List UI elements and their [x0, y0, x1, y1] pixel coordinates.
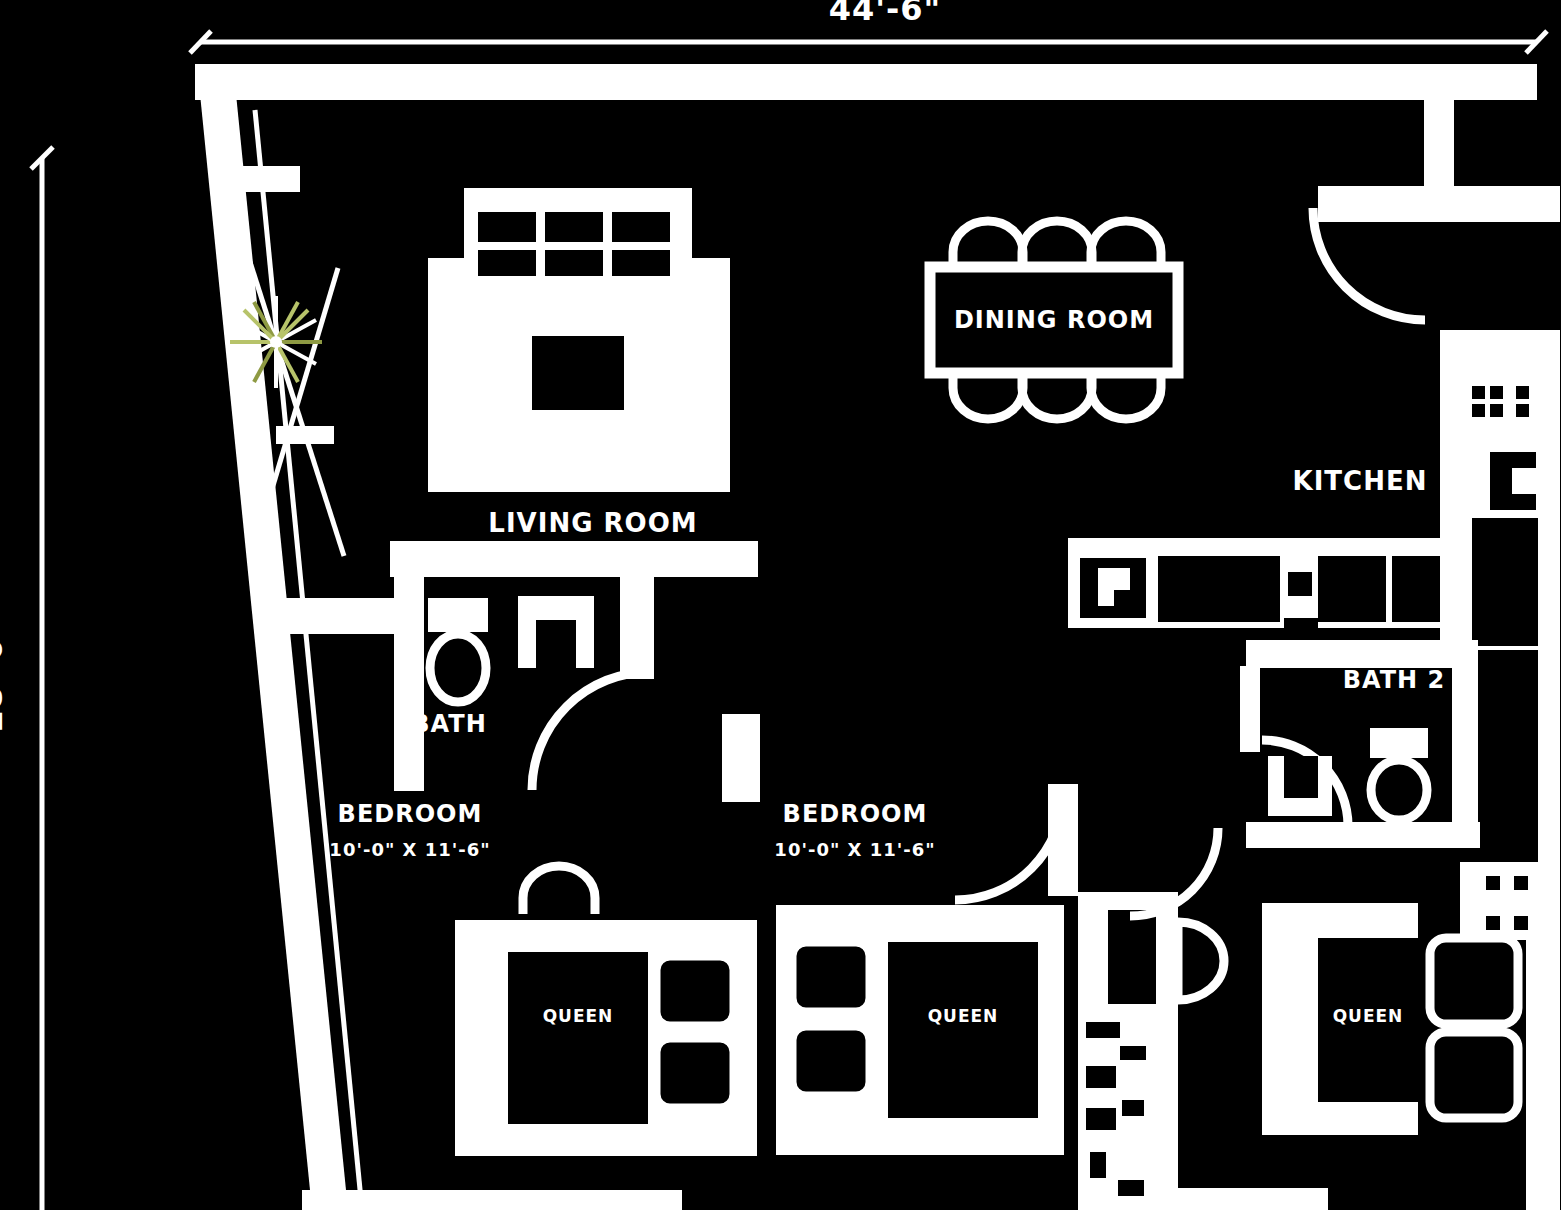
- bed-3: QUEEN: [1262, 903, 1518, 1135]
- bedroom-2: BEDROOM 10'-0" X 11'-6" QUEEN: [774, 800, 1064, 1155]
- left-dimension-line: 28'-0": [0, 147, 53, 1210]
- bedroom-3: QUEEN: [1262, 903, 1518, 1135]
- floor-plan-drawing: 44'-6" 28'-0": [0, 0, 1561, 1210]
- bath2-label: BATH 2: [1343, 666, 1446, 694]
- bath1-label: BATH: [411, 710, 486, 738]
- top-dimension-line: 44'-6": [190, 0, 1547, 53]
- living-room-label: LIVING ROOM: [488, 508, 697, 538]
- pillow-icon: [792, 1026, 870, 1096]
- bed3-label: QUEEN: [1333, 1006, 1404, 1026]
- closet-shelf: [1108, 910, 1156, 1004]
- tall-cabinet: [1472, 518, 1538, 646]
- bedroom1-size: 10'-0" X 11'-6": [329, 839, 490, 860]
- bath1-sink-icon: [518, 596, 594, 668]
- bath1-door-arc: [532, 672, 650, 790]
- pillow-icon: [656, 956, 734, 1026]
- sink-drain-icon: [1288, 572, 1312, 596]
- living-room: LIVING ROOM: [428, 188, 730, 538]
- closet-door-half-circle: [1178, 922, 1224, 1000]
- walk-in-closet: [1078, 828, 1224, 1210]
- bedroom1-label: BEDROOM: [338, 800, 483, 828]
- media-window-unit: [464, 188, 692, 282]
- bath-1: BATH: [270, 541, 760, 802]
- chair-icon: [523, 866, 595, 914]
- pillow-icon: [1430, 1032, 1518, 1118]
- bed-1: QUEEN: [455, 920, 757, 1156]
- floor-plan-canvas: 44'-6" 28'-0": [0, 0, 1561, 1210]
- kitchen-door-leaf: [1424, 100, 1454, 222]
- hall-door: [955, 784, 1078, 900]
- top-dimension-text: 44'-6": [829, 0, 942, 28]
- left-dimension-text: 28'-0": [0, 620, 10, 733]
- bath-2: BATH 2: [1240, 640, 1480, 848]
- dining-room-label: DINING ROOM: [954, 306, 1154, 334]
- kitchen-label: KITCHEN: [1293, 466, 1428, 496]
- base-cabinet: [1318, 556, 1386, 622]
- coffee-table: [532, 336, 624, 410]
- base-cabinet: [1158, 556, 1280, 622]
- oven-door-icon: [1512, 468, 1536, 494]
- bed1-label: QUEEN: [543, 1006, 614, 1026]
- bedroom2-size: 10'-0" X 11'-6": [774, 839, 935, 860]
- pillow-icon: [792, 942, 870, 1012]
- bed-blanket: [888, 942, 1038, 1118]
- bedroom2-label: BEDROOM: [783, 800, 928, 828]
- dining-room: DINING ROOM: [930, 221, 1178, 419]
- sink-faucet-icon: [1284, 618, 1318, 628]
- toilet-icon: [428, 598, 488, 702]
- toilet-icon: [1370, 728, 1428, 820]
- bed2-label: QUEEN: [928, 1006, 999, 1026]
- bedroom-1: BEDROOM 10'-0" X 11'-6" QUEEN: [329, 800, 757, 1156]
- pillow-icon: [656, 1038, 734, 1108]
- bath2-sink-icon: [1268, 756, 1332, 816]
- bed-blanket: [508, 952, 648, 1124]
- kitchen-door-arc: [1313, 208, 1425, 320]
- bed-2: QUEEN: [776, 905, 1064, 1155]
- pillow-icon: [1430, 938, 1518, 1024]
